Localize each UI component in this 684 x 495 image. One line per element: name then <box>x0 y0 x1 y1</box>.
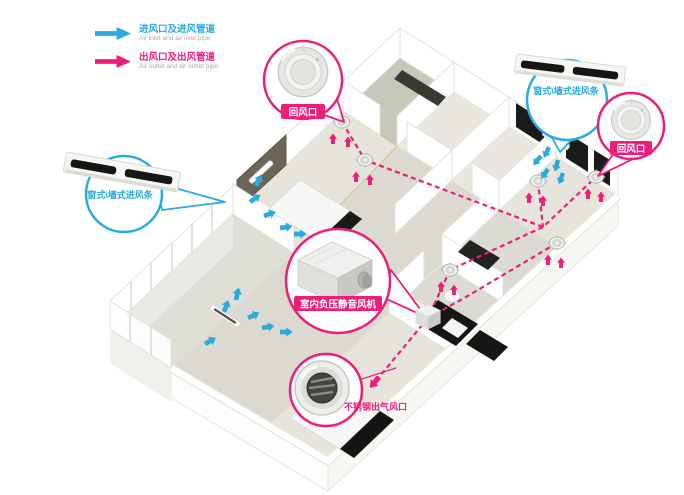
legend-outlet-sublabel: Air outlet and air outlet pipe <box>139 63 218 71</box>
inlet-arrow-icon <box>95 27 131 40</box>
callout-return-air-top: 回风口 <box>264 41 344 122</box>
steel-outlet-icon <box>295 361 349 415</box>
legend-inlet-row: 进风口及进风管道 Air inlet and air inlet pipe <box>95 24 218 43</box>
legend-outlet-text: 出风口及出风管道 Air outlet and air outlet pipe <box>139 52 218 71</box>
toilet <box>444 290 460 302</box>
legend-inlet-label: 进风口及进风管道 <box>139 24 215 35</box>
outlet-arrow-icon <box>95 55 131 68</box>
callout-label: 回风口 <box>617 144 646 155</box>
ventilation-diagram: 进风口及进风管道 Air inlet and air inlet pipe 出风… <box>0 0 684 495</box>
callout-return-air-right: 回风口 <box>598 93 664 176</box>
callout-label: 窗式\墙式进风条 <box>87 189 154 200</box>
callout-label: 不锈钢出气风口 <box>344 401 407 412</box>
legend-outlet-label: 出风口及出风管道 <box>139 52 218 63</box>
legend-inlet-sublabel: Air inlet and air inlet pipe <box>139 35 215 43</box>
legend-inlet-text: 进风口及进风管道 Air inlet and air inlet pipe <box>139 24 215 43</box>
callout-label: 室内负压静音风机 <box>300 299 377 311</box>
legend: 进风口及进风管道 Air inlet and air inlet pipe 出风… <box>95 24 218 80</box>
callout-label: 窗式\墙式进风条 <box>533 85 600 96</box>
legend-outlet-row: 出风口及出风管道 Air outlet and air outlet pipe <box>95 52 218 71</box>
callout-label: 回风口 <box>289 108 318 119</box>
